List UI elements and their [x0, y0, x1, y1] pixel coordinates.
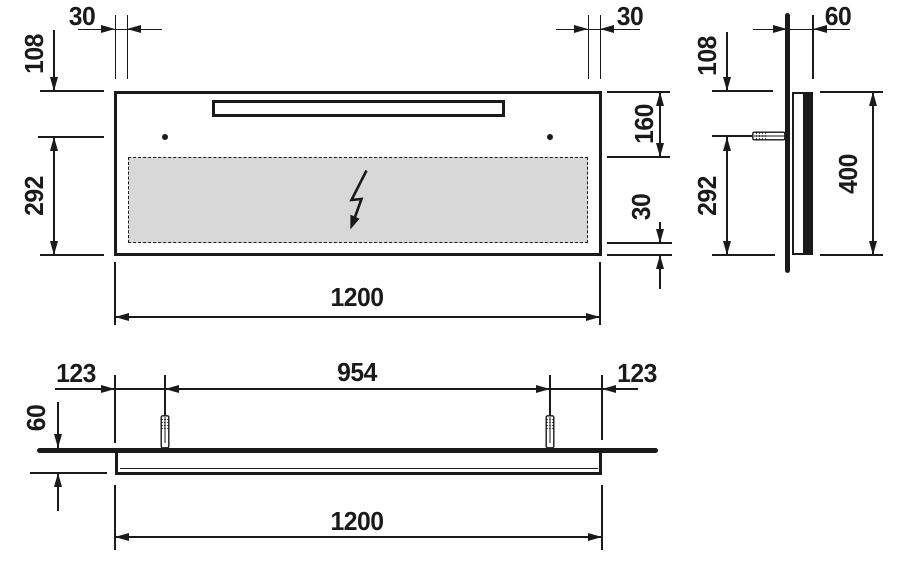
wall-anchor-icon: [160, 415, 170, 449]
extension-line: [38, 136, 104, 137]
dimension-line: [872, 92, 873, 255]
dimension-arrow: [54, 473, 62, 487]
dimension-arrow: [165, 385, 179, 393]
dimension-arrow: [723, 77, 731, 91]
dimension-arrow: [50, 77, 58, 91]
dimension-arrow: [101, 385, 115, 393]
mirror-plan-glass-line: [120, 468, 598, 469]
extension-line: [30, 472, 107, 473]
dimension-line: [115, 316, 600, 317]
dim-label-side-top-to-fixing: 108: [694, 36, 720, 76]
dimension-arrow: [600, 25, 614, 33]
dimension-arrow: [588, 533, 602, 541]
dimension-arrow: [869, 241, 877, 255]
dimension-arrow: [54, 434, 62, 448]
dim-label-side-fixing-to-bottom: 292: [694, 176, 720, 216]
dimension-arrow: [773, 25, 787, 33]
dimension-arrow: [536, 385, 550, 393]
extension-line: [40, 90, 104, 91]
dimension-arrow: [574, 25, 588, 33]
dim-label-panel-to-bottom: 30: [628, 194, 654, 221]
dim-label-edge-to-fixing-right: 123: [617, 360, 657, 386]
dimension-arrow: [656, 229, 664, 243]
dimension-line: [53, 137, 54, 255]
wall-anchor-icon: [752, 131, 786, 141]
dimension-arrow: [101, 25, 115, 33]
light-strip: [212, 100, 505, 117]
dimension-arrow: [656, 255, 664, 269]
dimension-arrow: [50, 241, 58, 255]
dim-label-plan-width: 1200: [330, 508, 383, 534]
dimension-line: [55, 388, 638, 389]
dim-label-plan-depth: 60: [23, 405, 49, 432]
dim-label-top-to-fixings: 108: [21, 34, 47, 74]
dimension-arrow: [602, 385, 616, 393]
fixing-centre-line: [164, 375, 165, 417]
wall-line: [785, 13, 790, 273]
fixing-point-icon: [547, 134, 553, 140]
dim-label-panel-inset-left: 30: [69, 3, 96, 29]
extension-line: [712, 254, 775, 255]
dimension-arrow: [869, 92, 877, 106]
dim-label-front-width: 1200: [330, 284, 383, 310]
dimension-line: [726, 137, 727, 256]
dimension-arrow: [115, 533, 129, 541]
fixing-centre-line: [549, 375, 550, 417]
dim-label-panel-inset-right: 30: [617, 3, 644, 29]
dimension-arrow: [656, 143, 664, 157]
mirror-side-profile: [792, 92, 813, 255]
dim-label-overall-height: 400: [835, 154, 861, 194]
dimension-arrow: [723, 241, 731, 255]
dim-label-fixings-to-bottom: 292: [21, 176, 47, 216]
dim-label-depth: 60: [825, 3, 852, 29]
dim-label-top-to-panel: 160: [631, 104, 657, 144]
dimension-arrow: [127, 25, 141, 33]
mirror-plan-profile: [115, 453, 602, 475]
fixing-point-icon: [162, 134, 168, 140]
wall-anchor-icon: [545, 415, 555, 449]
dimension-arrow: [115, 313, 129, 321]
dimension-arrow: [586, 313, 600, 321]
extension-line: [40, 254, 104, 255]
technical-drawing-canvas: 30 30 108 292 160 30: [0, 0, 905, 575]
lightning-bolt-icon: [342, 169, 368, 231]
dim-label-edge-to-fixing-left: 123: [56, 360, 96, 386]
extension-line: [712, 90, 773, 91]
dimension-line: [115, 536, 602, 537]
dim-label-fixing-centres: 954: [337, 359, 377, 385]
